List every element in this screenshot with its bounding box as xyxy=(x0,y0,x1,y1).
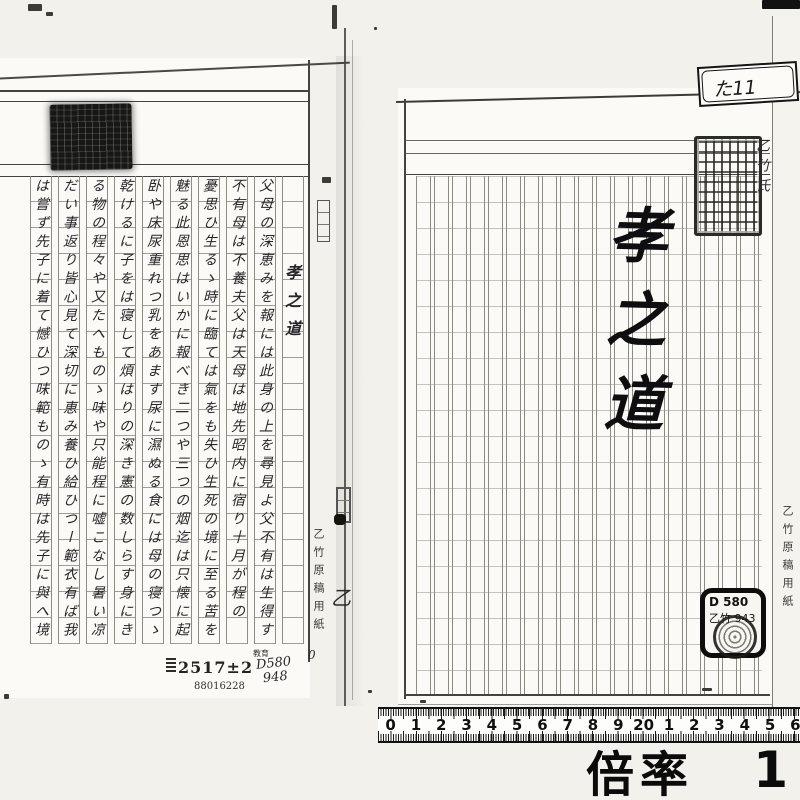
left-header-rule xyxy=(0,101,310,102)
manuscript-column: 乾けるに子をは寝して煩はりの深き憲の数しらす身にき xyxy=(114,176,136,644)
right-page-left-border xyxy=(404,99,406,699)
edge-paper-brand-text: 乙竹原稿用紙 xyxy=(779,505,795,635)
accession-number: 2517±2 xyxy=(178,658,253,677)
ink-blot xyxy=(334,514,346,525)
call-number-line1: D 580 xyxy=(709,595,761,609)
scan-speck xyxy=(368,690,372,693)
manuscript-column: 卧や床尿重れつ乳をあます尿に濕ぬる食には母の寝つゝ xyxy=(142,176,164,644)
serial-number: 88016228 xyxy=(194,681,245,692)
round-date-stamp xyxy=(713,615,757,659)
page-number-box xyxy=(317,200,330,242)
manuscript-column: 憂思ひ生るゝ時に臨ては氣をも失ひ生死の境に至る苦を xyxy=(198,176,220,644)
manuscript-column: 不有母は不養夫父は天母は地先昭内に宿り十月が程の xyxy=(226,176,248,644)
binding-fold-line xyxy=(352,40,353,700)
manuscript-column: は嘗ず先子に着て憾ひつ味範ものゝ有時は先子に與へ境 xyxy=(30,176,52,644)
left-header-rule xyxy=(0,90,310,92)
scan-speck xyxy=(322,177,331,183)
scan-speck xyxy=(702,688,712,691)
calligraphy-title: 孝之道 xyxy=(590,203,677,485)
scan-speck xyxy=(4,694,9,699)
index-tab-text: た11 xyxy=(701,65,795,103)
right-page-bottom-edge xyxy=(398,704,772,705)
magnification-value: 1 xyxy=(753,741,800,799)
scan-speck xyxy=(374,27,377,30)
manuscript-column: 父母の深恵みを報には此身の上を尋見よ父不有は生得す xyxy=(254,176,276,644)
left-header-rule xyxy=(0,164,310,165)
scan-speck xyxy=(420,700,426,703)
scanned-manuscript-page: 孝之道 父母の深恵みを報には此身の上を尋見よ父不有は生得す 不有母は不養夫父は天… xyxy=(0,0,800,800)
scan-speck xyxy=(332,5,337,29)
magnification-label: 倍率 xyxy=(586,735,694,800)
manuscript-column: だい事返り皆心見て深切に恵み養ひ給ひつー範衣有ば我 xyxy=(58,176,80,644)
library-ink-stamp xyxy=(49,103,132,170)
scan-speck xyxy=(28,4,42,11)
scan-speck xyxy=(46,12,53,16)
magnification-caption: 倍率 1 xyxy=(586,740,800,800)
manuscript-grid-left: 孝之道 父母の深恵みを報には此身の上を尋見よ父不有は生得す 不有母は不養夫父は天… xyxy=(7,176,307,644)
manuscript-column: る物の程々や又たへものゝ味や只能程に嘘こなし暑い凉 xyxy=(86,176,108,644)
right-page-bottom-rule xyxy=(404,694,770,696)
paper-brand-text: 乙竹原稿用紙 xyxy=(310,528,326,658)
index-tab-label: た11 xyxy=(697,61,799,107)
accession-stamp-prefix xyxy=(166,658,176,672)
handwritten-character: 乙 xyxy=(331,582,351,611)
scan-speck xyxy=(762,0,800,9)
manuscript-column: 魅る此恩思はいかに報べき二つや三つの烟迄は只懐に起 xyxy=(170,176,192,644)
call-number-label: D 580 乙竹 943 xyxy=(700,588,766,658)
pencil-number: 948 xyxy=(262,669,288,687)
owner-name-text: 乙竹氏 xyxy=(752,138,772,228)
handwritten-zero: 0 xyxy=(308,648,316,662)
manuscript-title-column: 孝之道 xyxy=(282,176,304,644)
